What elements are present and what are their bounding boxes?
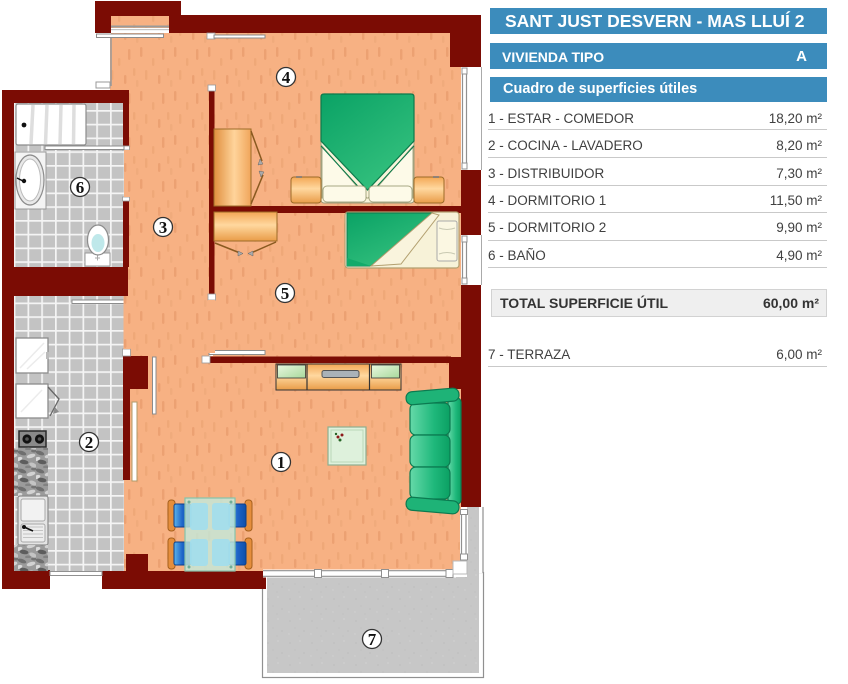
svg-text:1: 1 (277, 453, 286, 472)
svg-text:7: 7 (368, 630, 377, 649)
svg-text:4: 4 (282, 68, 291, 87)
svg-text:6: 6 (76, 178, 85, 197)
svg-text:3: 3 (159, 218, 168, 237)
svg-text:5: 5 (281, 284, 290, 303)
svg-text:2: 2 (85, 433, 94, 452)
